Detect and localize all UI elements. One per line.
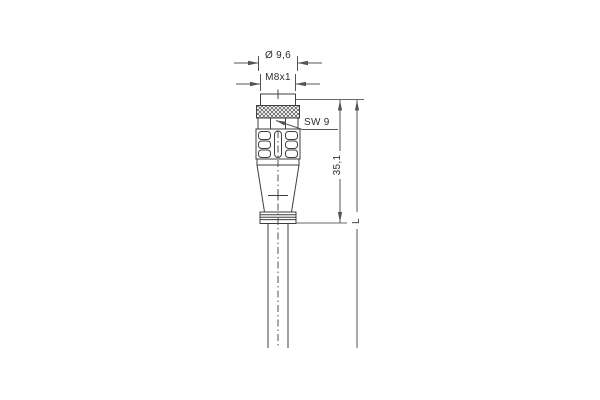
connector-body <box>256 90 300 349</box>
wrench-size-label: SW 9 <box>304 117 330 129</box>
diameter-label: Ø 9,6 <box>248 50 308 62</box>
connector-dimension-drawing: Ø 9,6 M8x1 SW 9 35,1 L <box>0 0 600 400</box>
connector-length-label: 35,1 <box>332 150 344 180</box>
knurled-ring <box>257 106 300 119</box>
cable-length-label: L <box>351 206 363 236</box>
thread-label: M8x1 <box>248 72 308 84</box>
cable <box>268 224 288 349</box>
hex-nut <box>258 118 298 129</box>
